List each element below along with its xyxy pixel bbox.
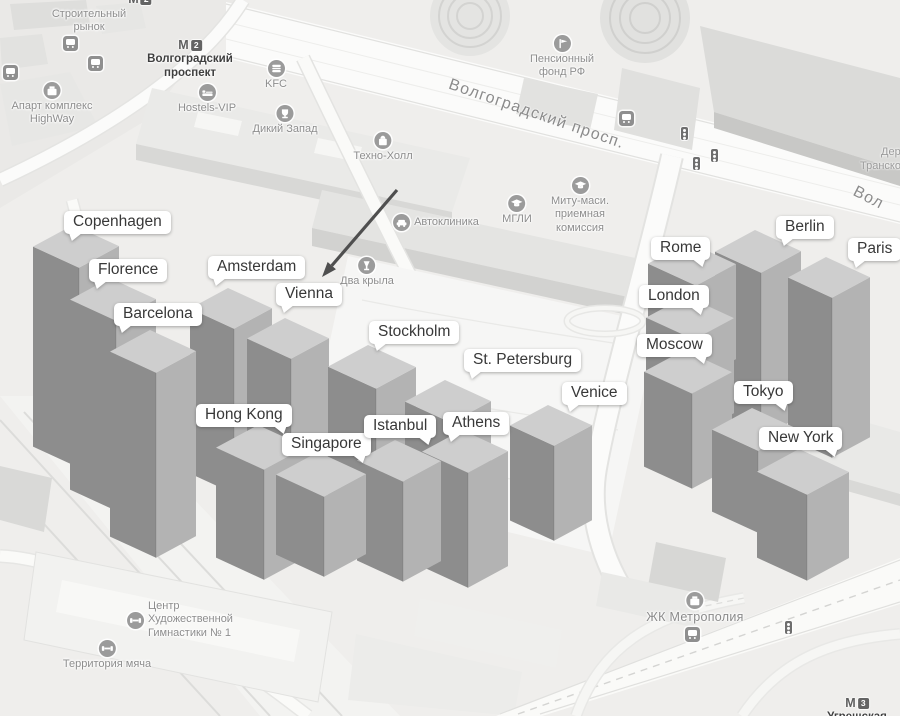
bubble-tail	[567, 404, 580, 412]
city-name: London	[648, 287, 700, 304]
city-name: Rome	[660, 239, 701, 256]
city-label-paris[interactable]: Paris	[848, 238, 900, 261]
bubble-tail	[775, 403, 788, 411]
city-label-new-york[interactable]: New York	[759, 427, 842, 450]
city-label-st-petersburg[interactable]: St. Petersburg	[464, 349, 581, 372]
city-label-venice[interactable]: Venice	[562, 382, 627, 405]
bubble-tail	[353, 455, 366, 463]
bubble-tail	[692, 259, 705, 267]
city-label-berlin[interactable]: Berlin	[776, 216, 834, 239]
city-annotation-layer: CopenhagenFlorenceBarcelonaAmsterdamVien…	[0, 0, 900, 716]
bubble-tail	[213, 278, 226, 286]
city-name: Florence	[98, 261, 158, 278]
bubble-tail	[691, 307, 704, 315]
city-label-rome[interactable]: Rome	[651, 237, 710, 260]
city-name: Paris	[857, 240, 892, 257]
bubble-tail	[469, 371, 482, 379]
city-label-florence[interactable]: Florence	[89, 259, 167, 282]
city-name: Vienna	[285, 285, 333, 302]
city-label-barcelona[interactable]: Barcelona	[114, 303, 202, 326]
city-name: Venice	[571, 384, 618, 401]
bubble-tail	[119, 325, 132, 333]
city-name: Hong Kong	[205, 406, 283, 423]
city-label-stockholm[interactable]: Stockholm	[369, 321, 459, 344]
city-label-moscow[interactable]: Moscow	[637, 334, 712, 357]
city-name: Istanbul	[373, 417, 427, 434]
city-label-london[interactable]: London	[639, 285, 709, 308]
city-name: New York	[768, 429, 833, 446]
bubble-tail	[418, 437, 431, 445]
city-name: Singapore	[291, 435, 362, 452]
bubble-tail	[824, 449, 837, 457]
bubble-tail	[448, 434, 461, 442]
bubble-tail	[281, 305, 294, 313]
city-name: Copenhagen	[73, 213, 162, 230]
city-name: Amsterdam	[217, 258, 296, 275]
city-name: Stockholm	[378, 323, 450, 340]
city-label-singapore[interactable]: Singapore	[282, 433, 371, 456]
city-label-istanbul[interactable]: Istanbul	[364, 415, 436, 438]
city-label-vienna[interactable]: Vienna	[276, 283, 342, 306]
bubble-tail	[781, 238, 794, 246]
city-name: St. Petersburg	[473, 351, 572, 368]
city-name: Berlin	[785, 218, 825, 235]
city-label-copenhagen[interactable]: Copenhagen	[64, 211, 171, 234]
city-name: Tokyo	[743, 383, 784, 400]
bubble-tail	[853, 260, 866, 268]
bubble-tail	[374, 343, 387, 351]
bubble-tail	[69, 233, 82, 241]
city-name: Barcelona	[123, 305, 193, 322]
city-label-athens[interactable]: Athens	[443, 412, 509, 435]
city-name: Athens	[452, 414, 500, 431]
city-name: Moscow	[646, 336, 703, 353]
city-label-amsterdam[interactable]: Amsterdam	[208, 256, 305, 279]
map-3d-scene[interactable]: Строительный рынокАпарт комплекс HighWay…	[0, 0, 900, 716]
bubble-tail	[694, 356, 707, 364]
city-label-tokyo[interactable]: Tokyo	[734, 381, 793, 404]
bubble-tail	[94, 281, 107, 289]
city-label-hong-kong[interactable]: Hong Kong	[196, 404, 292, 427]
